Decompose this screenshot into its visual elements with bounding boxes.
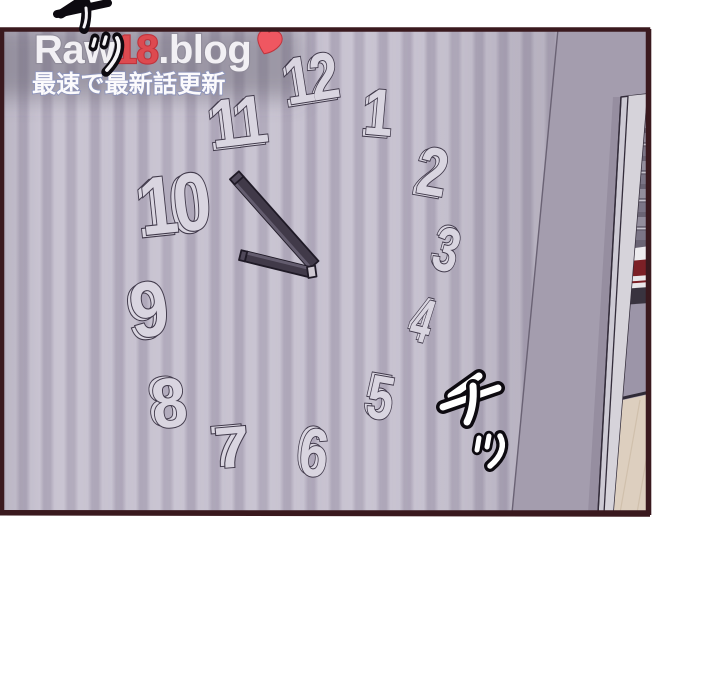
svg-text:Raw18.blog: Raw18.blog xyxy=(34,28,251,72)
svg-text:10: 10 xyxy=(135,155,213,253)
svg-text:7: 7 xyxy=(212,413,252,481)
svg-text:最速で最新話更新: 最速で最新話更新 xyxy=(32,70,226,98)
